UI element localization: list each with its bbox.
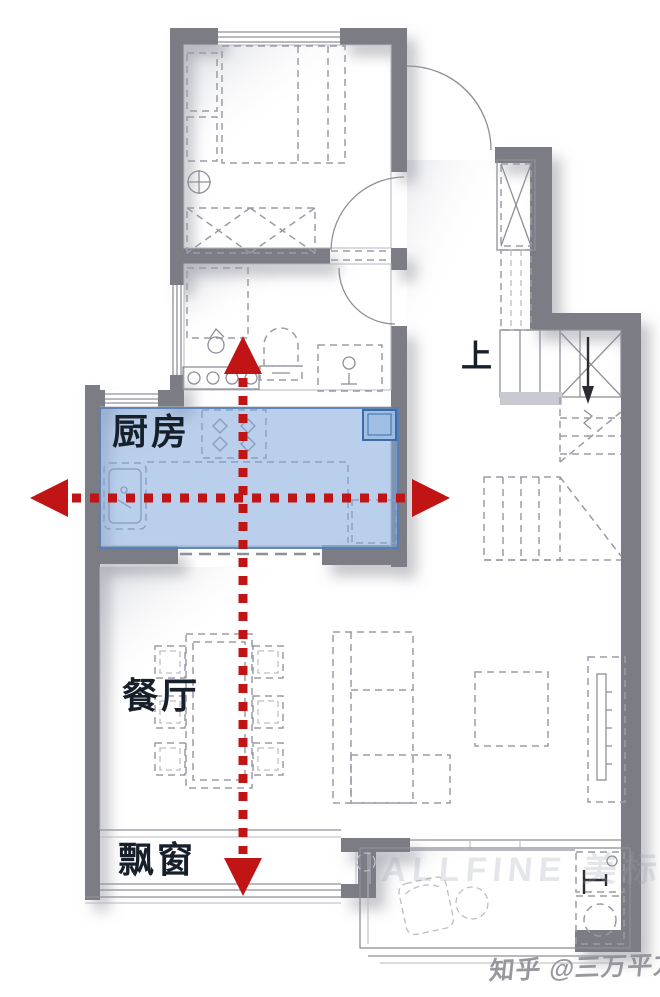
- stairs-upper-flight: [500, 330, 621, 405]
- bathroom-window: [170, 285, 184, 375]
- bedroom-window: [218, 28, 340, 45]
- sofa: [333, 632, 450, 803]
- stairs-direction-arrow: [582, 337, 594, 429]
- dining-label: 餐厅: [122, 678, 200, 714]
- stairs-up-label: 上: [461, 341, 492, 372]
- bay-window-label: 飘窗: [118, 842, 196, 878]
- kitchen-label: 厨房: [112, 414, 190, 450]
- kitchen-window: [105, 390, 158, 407]
- site-watermark: 知乎 @三万平方: [488, 945, 660, 988]
- fridge: [363, 410, 396, 440]
- tv-cabinet: [588, 657, 625, 802]
- floor-plan-image: 厨房 餐厅 飘窗 上 ALLFINE 美标 知乎 @三万平方: [0, 0, 660, 997]
- brand-watermark: ALLFINE 美标: [380, 842, 660, 891]
- wardrobe: [187, 208, 315, 253]
- washbasin: [318, 345, 382, 391]
- living-furniture: [333, 632, 625, 803]
- stairs-lower-flight: [484, 397, 621, 560]
- entry-door-arc: [407, 66, 491, 150]
- bathroom-door-arc: [339, 268, 395, 324]
- coffee-table: [475, 672, 548, 746]
